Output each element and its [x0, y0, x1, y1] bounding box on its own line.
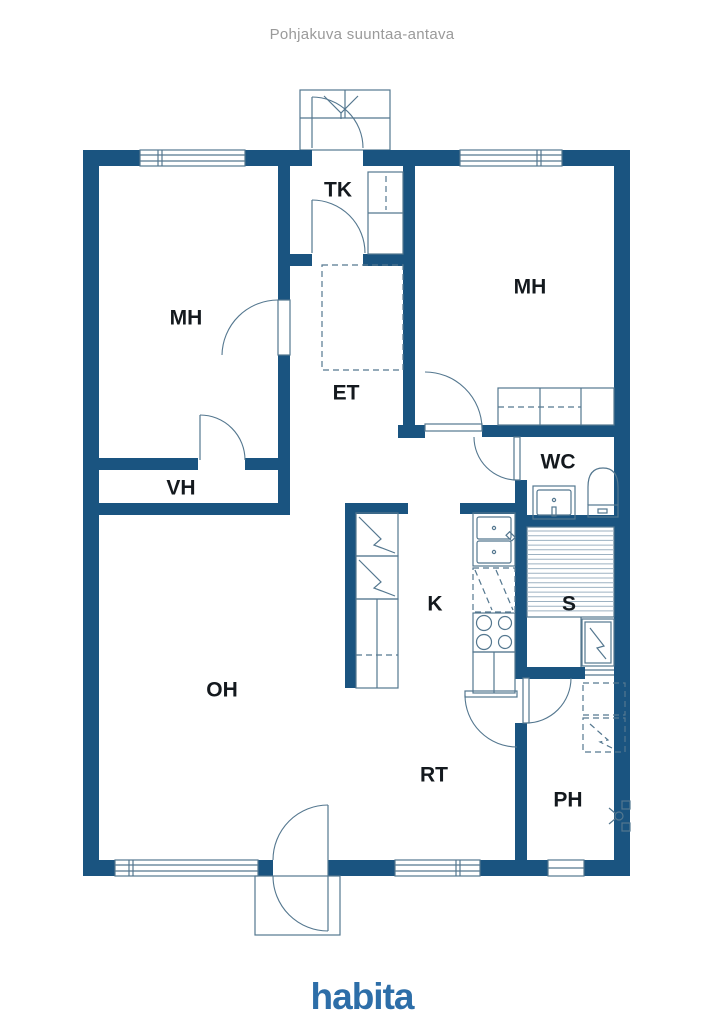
tk-inner-door: [312, 200, 365, 253]
stove-icon: [473, 613, 515, 652]
mh-left-door: [222, 300, 290, 355]
toilet-icon: [588, 468, 618, 517]
room-label-ph: PH: [553, 789, 582, 812]
dishwasher-reservation: [473, 568, 515, 612]
window: [140, 150, 245, 166]
fridge-freezer-icon: [356, 513, 398, 688]
room-label-rt: RT: [420, 764, 448, 787]
mh-right-closet: [498, 388, 614, 425]
room-label-wc: WC: [541, 451, 576, 474]
room-label-tk: TK: [324, 179, 352, 202]
wc-sink-icon: [533, 486, 575, 519]
ph-door: [523, 678, 571, 723]
window: [115, 860, 258, 876]
room-label-mh-right: MH: [514, 276, 547, 299]
kitchen-sink-icon: [473, 513, 515, 566]
et-wardrobe-reservation: [322, 265, 403, 370]
mh-right-door: [425, 372, 482, 431]
kitchen-counter: [473, 652, 515, 693]
floor-plan-page: Pohjakuva suuntaa-antava: [0, 0, 724, 1024]
room-label-vh: VH: [166, 477, 195, 500]
room-label-mh-left: MH: [170, 307, 203, 330]
window: [548, 860, 584, 876]
window: [395, 860, 480, 876]
sauna-glass-wall: [585, 670, 614, 675]
sauna-stove-icon: [582, 619, 614, 666]
room-label-et: ET: [333, 382, 360, 405]
room-label-k: K: [427, 593, 442, 616]
window: [460, 150, 562, 166]
kitchen-door: [465, 691, 517, 747]
room-label-s: S: [562, 593, 576, 616]
wc-door: [474, 437, 520, 480]
tk-closet: [368, 172, 403, 254]
brand-logo: habita: [0, 976, 724, 1018]
room-label-oh: OH: [206, 679, 238, 702]
entrance-porch: [300, 90, 390, 150]
terrace-step: [255, 876, 340, 935]
vh-door: [200, 415, 245, 460]
entrance-arrow-icon: [324, 96, 358, 113]
floor-plan-drawing: TK MH MH ET VH WC K S OH RT PH: [0, 0, 724, 1024]
